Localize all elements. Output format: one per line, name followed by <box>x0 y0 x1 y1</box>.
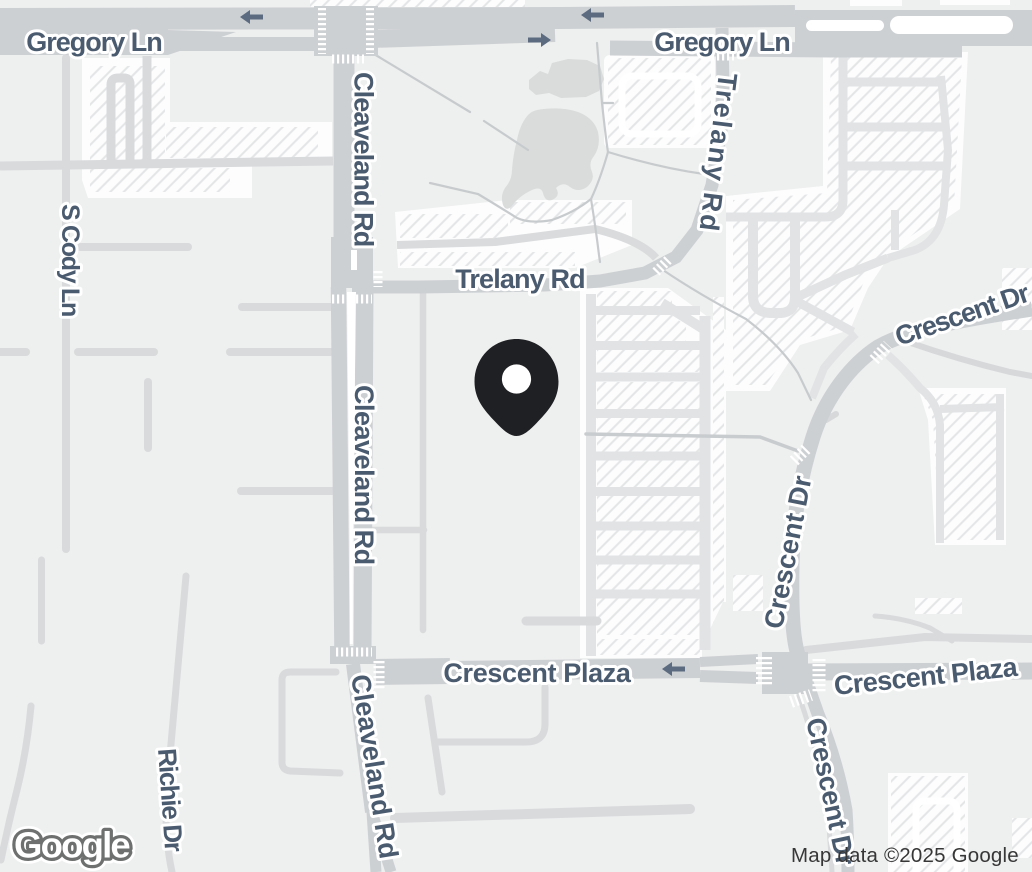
svg-text:Google: Google <box>14 825 130 866</box>
svg-text:Cleaveland Rd: Cleaveland Rd <box>349 72 379 246</box>
svg-text:S Cody Ln: S Cody Ln <box>56 204 84 316</box>
svg-text:Map data ©2025 Google: Map data ©2025 Google <box>791 844 1019 867</box>
svg-text:Gregory Ln: Gregory Ln <box>654 27 790 57</box>
svg-text:Gregory Ln: Gregory Ln <box>26 27 162 57</box>
svg-text:Cleaveland Rd: Cleaveland Rd <box>349 385 379 565</box>
svg-text:Crescent Plaza: Crescent Plaza <box>443 658 632 688</box>
svg-text:Trelany Rd: Trelany Rd <box>455 264 585 294</box>
